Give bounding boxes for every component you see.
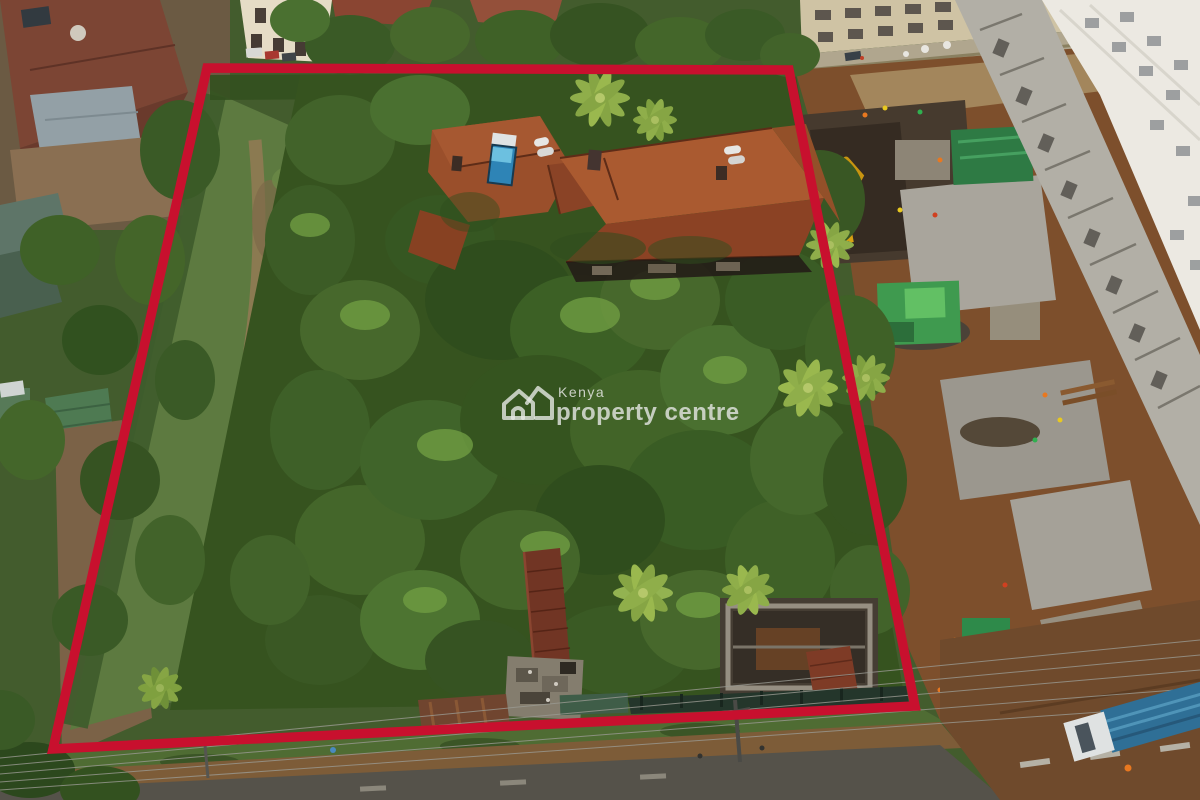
pedestrian [1125,765,1132,772]
watermark-line1: Kenya [558,384,605,400]
pedestrian [330,747,336,753]
parked-car [246,47,263,57]
pedestrian [698,754,703,759]
green-gate-panel [560,693,629,715]
parked-car [265,50,280,59]
watermark-line2: property centre [556,399,740,426]
chimney [587,150,602,171]
umbrella [921,45,929,53]
umbrella [943,41,951,49]
aerial-property-photo: Kenya property centre [0,0,1200,800]
chimney [716,166,727,180]
parked-car [282,52,297,61]
pedestrian [760,746,765,751]
chimney [451,156,462,172]
concrete-slab [1010,480,1152,610]
satellite-dish [70,25,86,41]
